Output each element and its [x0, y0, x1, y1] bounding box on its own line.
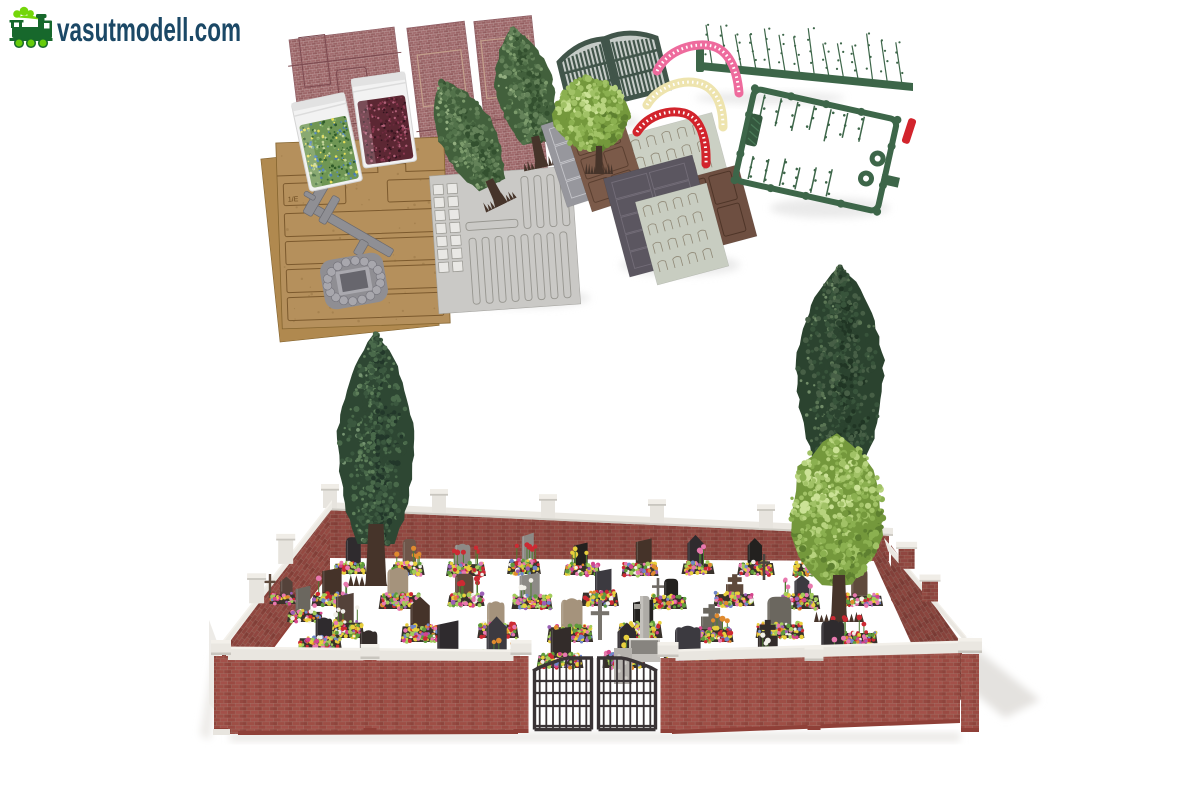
svg-text:vasutmodell.com: vasutmodell.com: [57, 11, 241, 48]
svg-text:1/E: 1/E: [288, 196, 299, 203]
